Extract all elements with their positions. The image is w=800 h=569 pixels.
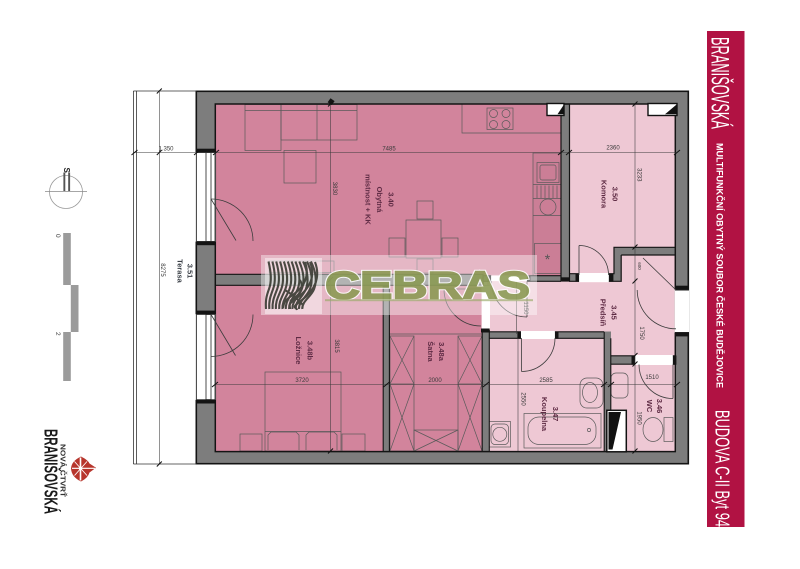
svg-text:7485: 7485 <box>382 147 396 153</box>
svg-text:2360: 2360 <box>606 146 620 152</box>
svg-text:2585: 2585 <box>539 378 553 384</box>
svg-text:2: 2 <box>54 332 61 336</box>
svg-text:místnost + KK: místnost + KK <box>364 174 373 225</box>
svg-text:3.50: 3.50 <box>611 187 620 202</box>
svg-text:BUDOVA C-II Byt 94: BUDOVA C-II Byt 94 <box>711 410 733 527</box>
svg-text:BRANIŠOVSKÁ: BRANIŠOVSKÁ <box>41 429 62 514</box>
svg-text:1750: 1750 <box>638 326 644 340</box>
svg-text:WC: WC <box>645 400 654 413</box>
svg-text:*: * <box>545 251 551 267</box>
svg-text:Koupelna: Koupelna <box>540 397 549 432</box>
svg-text:3.51: 3.51 <box>186 264 195 279</box>
svg-text:3830: 3830 <box>331 182 337 196</box>
svg-text:1.350: 1.350 <box>158 147 174 153</box>
svg-text:3.46: 3.46 <box>655 399 664 414</box>
svg-text:1950: 1950 <box>636 411 642 425</box>
svg-text:8275: 8275 <box>159 263 165 277</box>
svg-text:BRANIŠOVSKÁ: BRANIŠOVSKÁ <box>706 37 735 129</box>
svg-text:2000: 2000 <box>428 378 442 384</box>
svg-text:3.45: 3.45 <box>610 305 619 320</box>
svg-text:3815: 3815 <box>333 339 339 353</box>
svg-text:600: 600 <box>637 262 642 270</box>
svg-text:Předsíň: Předsíň <box>599 299 608 327</box>
svg-text:3720: 3720 <box>295 378 309 384</box>
svg-text:3.48b: 3.48b <box>306 341 315 361</box>
svg-text:S: S <box>62 168 71 174</box>
svg-text:Terasa: Terasa <box>176 259 185 283</box>
svg-text:NOVÁ ČTVRŤ: NOVÁ ČTVRŤ <box>59 444 68 498</box>
svg-text:3.47: 3.47 <box>551 407 560 422</box>
svg-text:Komora: Komora <box>600 180 609 209</box>
svg-text:3.40: 3.40 <box>387 192 396 207</box>
svg-text:Obytná: Obytná <box>375 187 384 214</box>
svg-text:1510: 1510 <box>645 375 659 381</box>
svg-text:MULTIFUNKČNÍ OBYTNÝ SOUBOR ČES: MULTIFUNKČNÍ OBYTNÝ SOUBOR ČESKÉ BUDĚJOV… <box>714 143 726 388</box>
svg-text:3233: 3233 <box>636 168 642 182</box>
svg-text:Šatna: Šatna <box>426 341 435 362</box>
svg-text:Ložnice: Ložnice <box>294 337 303 365</box>
svg-text:3.48a: 3.48a <box>437 342 446 362</box>
svg-text:0: 0 <box>54 234 61 238</box>
svg-text:2550: 2550 <box>520 392 526 406</box>
